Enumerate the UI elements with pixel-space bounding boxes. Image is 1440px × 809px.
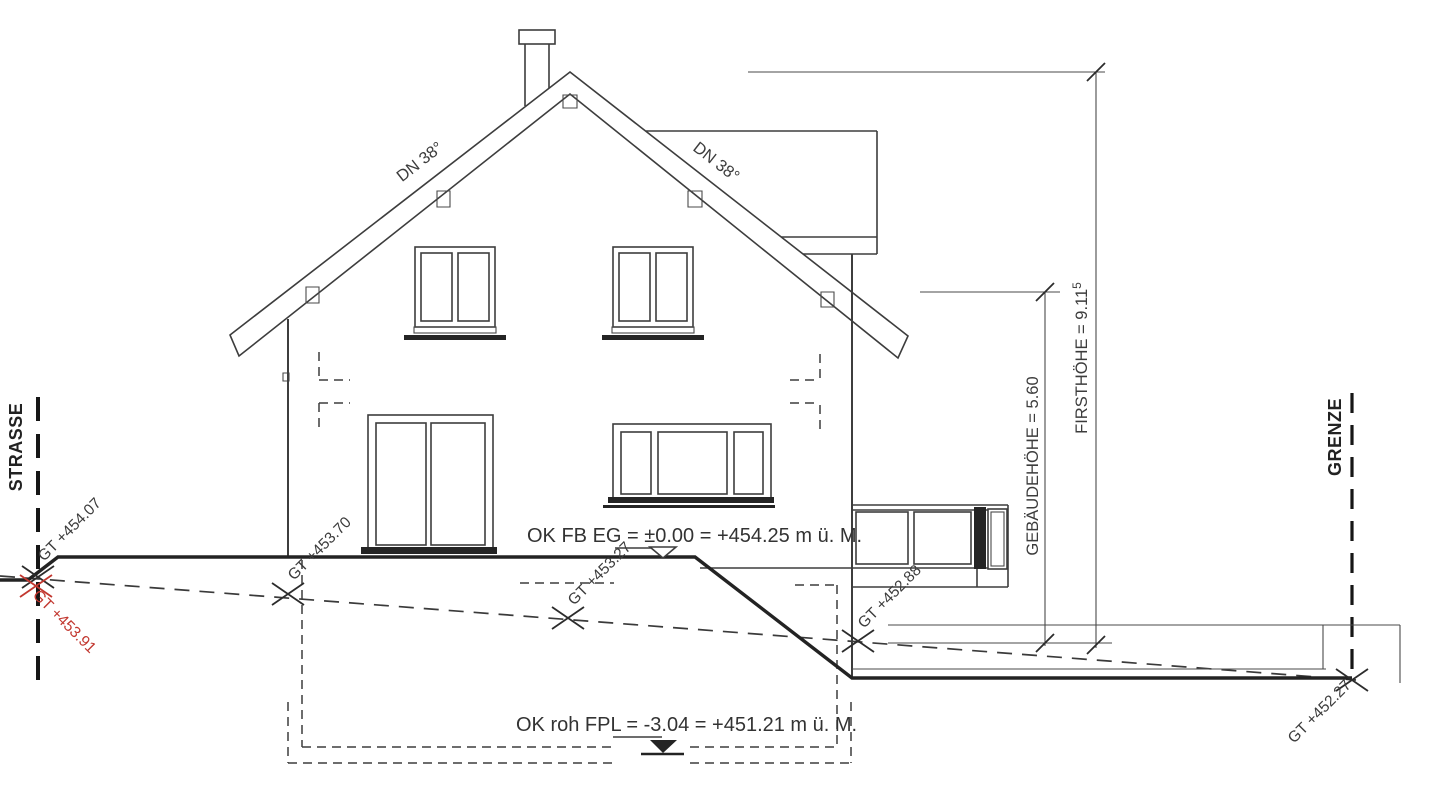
label-gt-house-mid: GT +453.27 [565, 539, 635, 609]
terrain-markers [20, 566, 1368, 691]
roof-hooks [283, 95, 834, 381]
door-panel [376, 423, 426, 545]
elevation-drawing: STRASSE GRENZE DN 38° DN 38° FIRSTHÖHE =… [0, 0, 1440, 809]
new-terrain-line [0, 557, 1352, 678]
annex-window [856, 512, 908, 564]
window-frame [613, 424, 771, 502]
label-roof-pitch-left: DN 38° [393, 139, 446, 186]
window-upper-right [602, 247, 704, 340]
retaining-structure [852, 625, 1400, 683]
label-building-height: GEBÄUDEHÖHE = 5.60 [1024, 376, 1042, 555]
annex-mullion [974, 507, 986, 569]
level-marker-filled-icon [650, 740, 677, 753]
label-grenze: GRENZE [1325, 398, 1345, 476]
cross-gable [646, 131, 877, 254]
annex-window [914, 512, 971, 564]
label-ridge-height: FIRSTHÖHE = 9.115 [1070, 282, 1091, 434]
window-casement [656, 253, 687, 321]
existing-terrain-line [0, 576, 1356, 680]
window-pane [658, 432, 727, 494]
label-gt-strasse-planned: GT +454.07 [35, 495, 105, 565]
label-strasse: STRASSE [6, 403, 26, 492]
window-casement [458, 253, 489, 321]
window-sill [414, 327, 496, 333]
roof-band-outline [230, 72, 908, 358]
window-sill [608, 497, 774, 503]
window-sill-edge [404, 335, 506, 340]
label-gt-house-right: GT +452.88 [855, 562, 925, 632]
window-sill-edge [602, 335, 704, 340]
hidden-floor-slab-left [319, 352, 350, 431]
hidden-floor-slab-right [790, 354, 820, 432]
window-sill [612, 327, 694, 333]
label-roof-pitch-right: DN 38° [690, 139, 743, 186]
label-gt-house-left: GT +453.70 [285, 514, 355, 584]
label-gt-grenze: GT +452.27 [1285, 677, 1355, 747]
dimension-ticks [1036, 63, 1105, 654]
patio-door [361, 415, 497, 554]
label-floor-level: OK FB EG = ±0.00 = +454.25 m ü. M. [527, 525, 862, 547]
window-pane [734, 432, 763, 494]
chimney-cap [519, 30, 555, 44]
window-frame [613, 247, 693, 327]
window-casement [619, 253, 650, 321]
window-upper-left [404, 247, 506, 340]
window-frame [415, 247, 495, 327]
label-foundation-level: OK roh FPL = -3.04 = +451.21 m ü. M. [516, 714, 857, 736]
window-casement [421, 253, 452, 321]
terrain-x-marks [22, 566, 1368, 691]
door-panel [431, 423, 485, 545]
door-threshold [361, 547, 497, 554]
roof [230, 30, 908, 381]
window-sill-edge [603, 505, 775, 508]
dimensions [748, 63, 1112, 654]
elevation-sheet: STRASSE GRENZE DN 38° DN 38° FIRSTHÖHE =… [0, 0, 1440, 809]
terrain-new [0, 557, 1400, 683]
window-ground [603, 424, 775, 508]
window-pane [621, 432, 651, 494]
terrain-existing [0, 576, 1356, 680]
labels: STRASSE GRENZE DN 38° DN 38° FIRSTHÖHE =… [6, 139, 1355, 747]
